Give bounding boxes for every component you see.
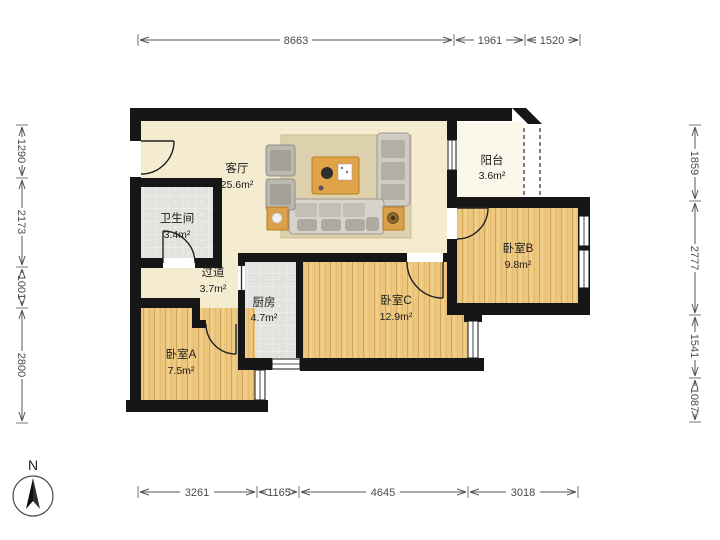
kitchen-area: 4.7m²: [251, 312, 278, 324]
sofa-right: [377, 133, 410, 206]
compass: N: [13, 457, 53, 516]
floor-plan-canvas: 客厅 25.6m² 阳台 3.6m² 卫生间 3.4m² 过道 3.7m² 厨房…: [0, 0, 720, 540]
kitchen-label: 厨房: [253, 296, 276, 309]
wall-bedroom-c-bottom: [300, 358, 484, 371]
wall-bedroom-a-bottom: [126, 400, 268, 412]
living-room-label: 客厅: [226, 161, 249, 175]
wall-bathroom-right: [213, 178, 222, 268]
dim-bottom-2: 1165: [267, 487, 291, 499]
dim-right-4: 1087: [688, 388, 700, 412]
bedroom-b-area: 9.8m²: [505, 259, 532, 271]
armchair-top: [266, 145, 295, 176]
bedroom-a-label: 卧室A: [166, 347, 197, 361]
hallway-label: 过道: [202, 265, 225, 279]
side-table-right: [383, 207, 404, 230]
wall-left-main: [130, 177, 141, 404]
balcony-open-edge: [524, 128, 540, 197]
living-room-area: 25.6m²: [221, 179, 254, 191]
wall-kitchen-left-lower: [238, 290, 245, 358]
wall-kitchen-right: [296, 253, 303, 358]
floor-plan-page: 客厅 25.6m² 阳台 3.6m² 卫生间 3.4m² 过道 3.7m² 厨房…: [0, 0, 720, 540]
dim-top-3: 1520: [540, 35, 564, 47]
wall-kitchen-bedroom-c-top: [238, 253, 407, 262]
wall-bathroom-bottom-left: [130, 258, 163, 268]
wall-kitchen-bottom: [238, 358, 272, 370]
dim-left-2: 2173: [15, 210, 27, 234]
dimension-chain-left: 1290 2173 1001 2800: [15, 125, 28, 423]
wall-left-top: [130, 108, 141, 141]
dim-top-1: 8663: [284, 35, 308, 47]
dimension-chain-right: 1859 2777 1541 1087: [688, 125, 701, 422]
bedroom-b-label: 卧室B: [503, 241, 534, 255]
window-kitchen-bottom: [272, 359, 300, 369]
balcony-label: 阳台: [481, 153, 504, 167]
balcony-area: 3.6m²: [479, 170, 506, 182]
compass-north-label: N: [28, 457, 38, 473]
wall-kitchen-left-upper: [238, 253, 245, 266]
window-bedroom-b-right-lower: [579, 250, 589, 288]
dim-left-1: 1290: [15, 139, 27, 163]
window-bedroom-b-right-upper: [579, 216, 589, 246]
dim-left-4: 2800: [15, 353, 27, 377]
window-balcony-divider: [448, 140, 456, 170]
living-room-furniture: [266, 133, 411, 238]
dim-bottom-1: 3261: [185, 487, 209, 499]
dimension-chain-bottom: 3261 1165 4645 3018: [138, 486, 578, 499]
hallway-area: 3.7m²: [200, 283, 227, 295]
bedroom-c-area: 12.9m²: [380, 311, 413, 323]
bedroom-b-floor: [457, 208, 578, 303]
wall-top-chamfer: [512, 108, 542, 124]
dim-top-2: 1961: [478, 35, 502, 47]
wall-step-horizontal: [192, 320, 206, 328]
bathroom-area: 3.4m²: [164, 229, 191, 241]
window-bedroom-a-right: [255, 370, 265, 400]
dim-right-2: 2777: [688, 246, 700, 270]
wall-top: [130, 108, 512, 121]
window-bedroom-c-right: [468, 321, 478, 358]
dim-bottom-4: 3018: [511, 487, 535, 499]
bedroom-c-label: 卧室C: [380, 293, 411, 307]
hallway-floor-upper: [222, 253, 238, 268]
coffee-table: [312, 157, 359, 194]
dim-right-1: 1859: [688, 151, 700, 175]
bedroom-a-area: 7.5m²: [168, 365, 195, 377]
dimension-chain-top: 8663 1961 1520: [138, 34, 580, 47]
dim-right-3: 1541: [688, 334, 700, 358]
armchair-bottom: [266, 179, 295, 210]
dim-left-3: 1001: [15, 275, 27, 299]
side-table-left: [267, 207, 288, 230]
wall-bathroom-top: [130, 178, 222, 187]
bathroom-label: 卫生间: [160, 211, 195, 225]
wall-bedroom-b-top: [447, 197, 590, 208]
wall-balcony-divider-bottom: [447, 170, 457, 198]
wall-bedroom-b-bottom: [447, 303, 590, 315]
sofa-main: [289, 199, 384, 234]
wall-balcony-divider-top: [447, 121, 457, 140]
dim-bottom-3: 4645: [371, 487, 395, 499]
bedroom-c-floor: [303, 262, 469, 358]
wall-bedroom-a-top: [130, 298, 195, 308]
